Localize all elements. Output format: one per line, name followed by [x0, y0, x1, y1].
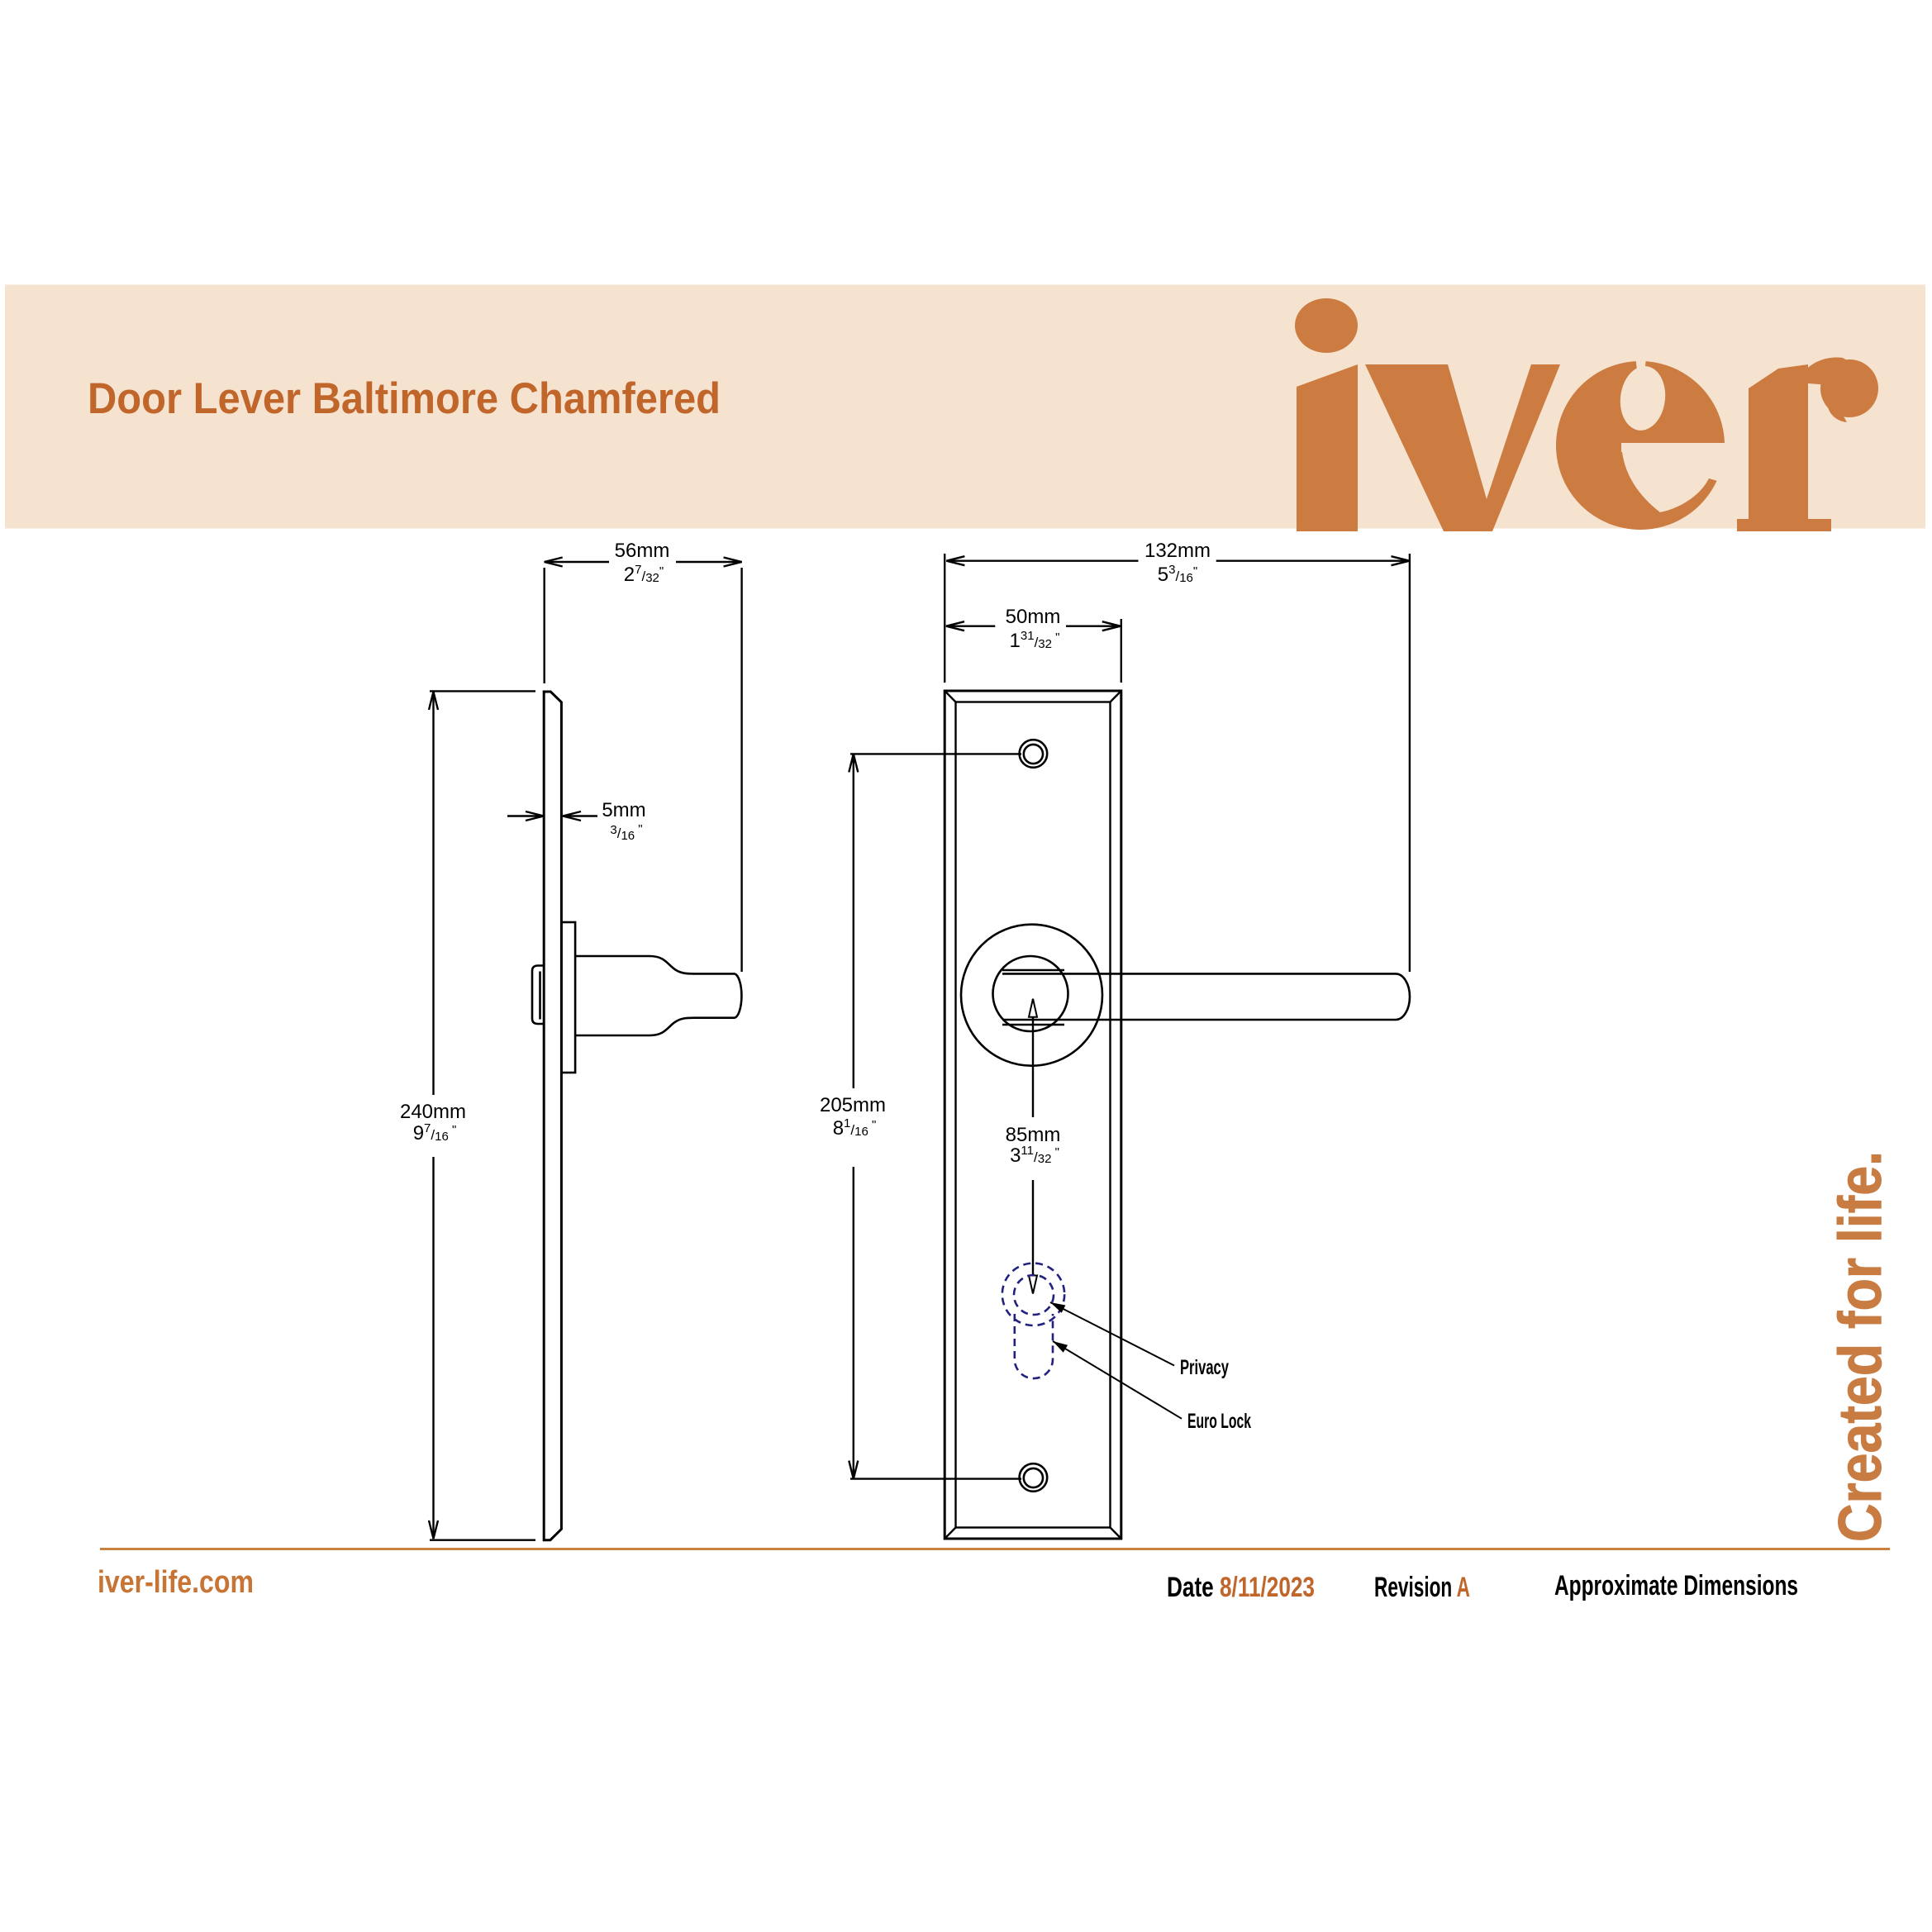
svg-text:iver-life.com: iver-life.com	[98, 1565, 254, 1600]
svg-text:205mm: 205mm	[820, 1094, 886, 1116]
svg-text:Date 8/11/2023: Date 8/11/2023	[1167, 1572, 1315, 1603]
svg-text:Created for life.: Created for life.	[1827, 1151, 1894, 1542]
svg-text:132mm: 132mm	[1144, 540, 1211, 562]
svg-text:240mm: 240mm	[400, 1101, 466, 1123]
svg-text:56mm: 56mm	[615, 540, 670, 562]
svg-text:Privacy: Privacy	[1180, 1356, 1229, 1379]
svg-text:Revision A: Revision A	[1374, 1572, 1470, 1603]
svg-text:50mm: 50mm	[1006, 606, 1061, 628]
svg-text:85mm: 85mm	[1006, 1124, 1061, 1146]
svg-text:5mm: 5mm	[602, 799, 645, 821]
svg-text:Euro Lock: Euro Lock	[1187, 1410, 1251, 1433]
svg-text:Door Lever Baltimore Chamfered: Door Lever Baltimore Chamfered	[88, 374, 721, 423]
svg-text:Approximate Dimensions: Approximate Dimensions	[1554, 1570, 1798, 1601]
